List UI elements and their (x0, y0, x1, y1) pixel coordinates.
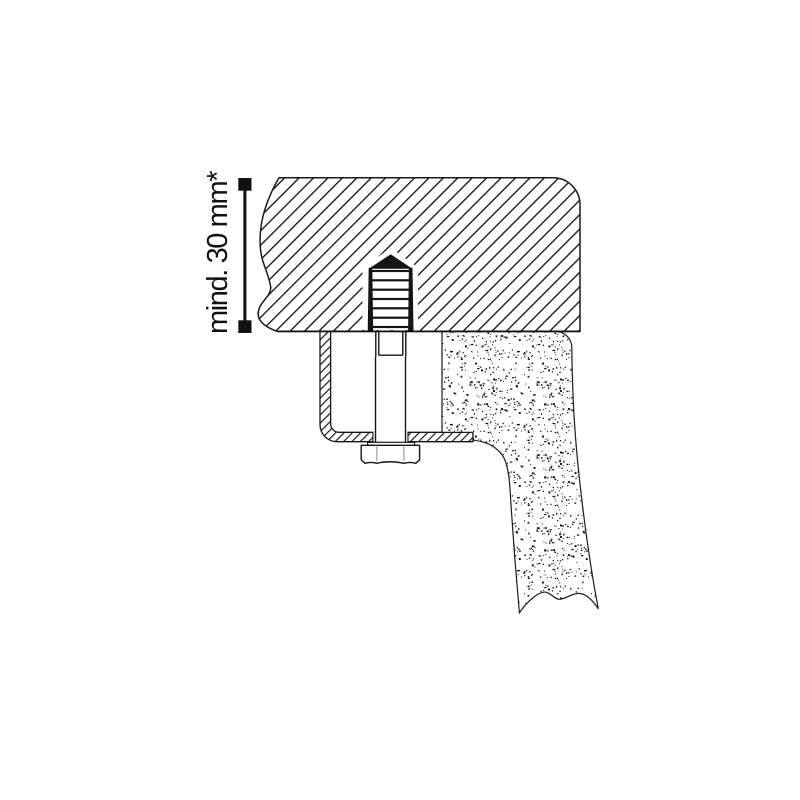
svg-text:mind. 30 mm*: mind. 30 mm* (202, 171, 234, 334)
